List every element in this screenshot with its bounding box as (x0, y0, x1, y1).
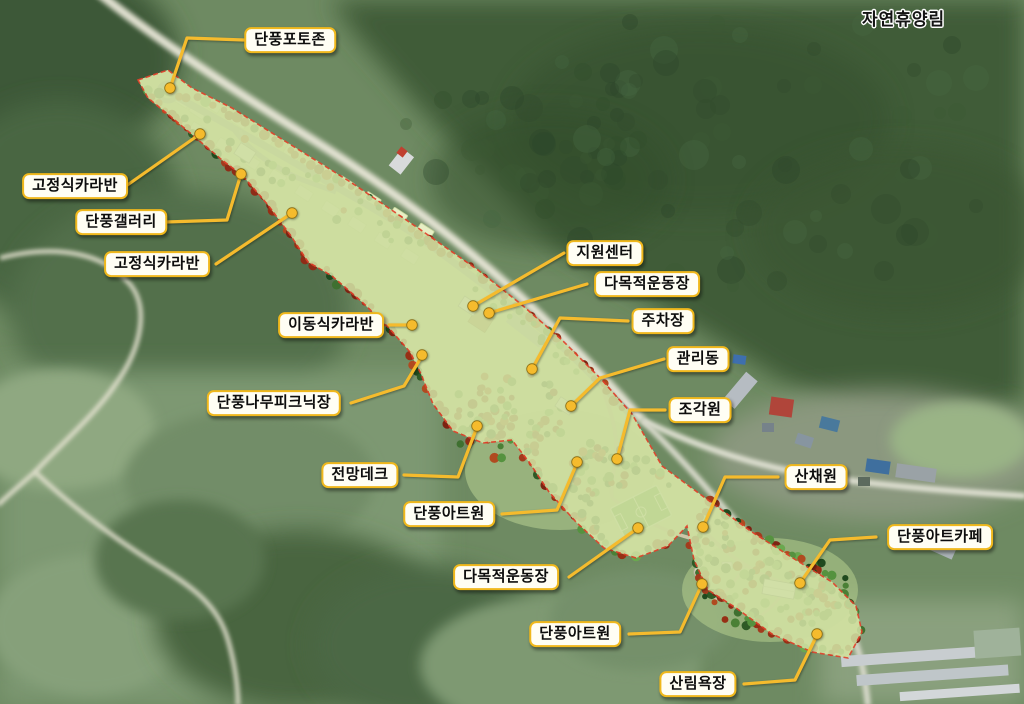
callout-label-forest-bathing-area: 산림욕장 (659, 671, 736, 697)
callout-label-parking-lot: 주차장 (632, 308, 695, 334)
callout-label-photo-zone: 단풍포토존 (244, 27, 336, 53)
callout-label-maple-art-garden-2: 단풍아트원 (529, 621, 621, 647)
region-label: 자연휴양림 (862, 5, 945, 30)
callout-label-multipurpose-field-2: 다목적운동장 (453, 564, 559, 590)
site-plan-map: 자연휴양림 단풍포토존고정식카라반단풍갤러리고정식카라반이동식카라반지원센터다목… (0, 0, 1024, 704)
callout-label-support-center: 지원센터 (566, 240, 643, 266)
callout-label-mobile-caravan: 이동식카라반 (278, 312, 384, 338)
callout-label-multipurpose-field-1: 다목적운동장 (594, 271, 700, 297)
callout-label-fixed-caravan-2: 고정식카라반 (104, 251, 210, 277)
callout-label-maple-art-cafe: 단풍아트카페 (887, 524, 993, 550)
callout-label-sculpture-garden: 조각원 (669, 397, 732, 423)
callout-label-maple-gallery: 단풍갤러리 (75, 209, 167, 235)
callout-label-observation-deck: 전망데크 (321, 462, 398, 488)
callout-label-maple-art-garden-1: 단풍아트원 (403, 501, 495, 527)
callout-label-management-building: 관리동 (667, 346, 730, 372)
callout-label-wild-vegetable-garden: 산채원 (785, 464, 848, 490)
callout-labels: 자연휴양림 단풍포토존고정식카라반단풍갤러리고정식카라반이동식카라반지원센터다목… (0, 0, 1024, 704)
callout-label-maple-picnic-area: 단풍나무피크닉장 (207, 390, 341, 416)
callout-label-fixed-caravan-1: 고정식카라반 (22, 173, 128, 199)
